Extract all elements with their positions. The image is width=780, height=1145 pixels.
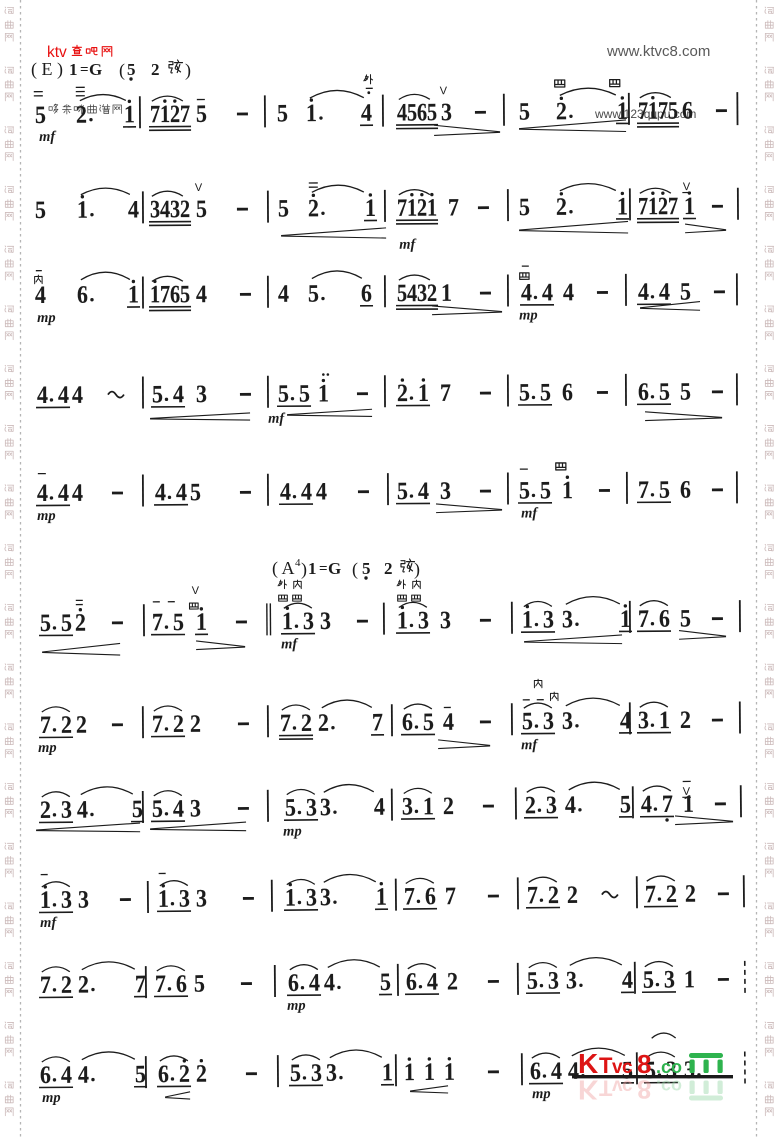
svg-text:3: 3 — [61, 797, 72, 824]
svg-text:4: 4 — [659, 279, 671, 306]
svg-text:5: 5 — [397, 280, 407, 307]
svg-text:6: 6 — [682, 97, 693, 124]
svg-text:1: 1 — [423, 793, 434, 820]
svg-text:2: 2 — [397, 380, 408, 407]
svg-text:5: 5 — [522, 708, 533, 735]
svg-text:7: 7 — [638, 606, 649, 633]
svg-text:7: 7 — [372, 709, 383, 736]
svg-text:3: 3 — [664, 966, 675, 993]
svg-text:7: 7 — [155, 971, 166, 998]
svg-text:1: 1 — [418, 380, 429, 407]
svg-text:2: 2 — [384, 559, 393, 578]
svg-text:4: 4 — [58, 382, 70, 409]
svg-text:7: 7 — [150, 101, 160, 128]
svg-text:2: 2 — [680, 707, 691, 734]
svg-text:www.ktvc8.com: www.ktvc8.com — [606, 43, 710, 60]
svg-text:4: 4 — [35, 282, 47, 309]
svg-text:2: 2 — [40, 797, 51, 824]
svg-text:5: 5 — [540, 379, 551, 406]
svg-text:4: 4 — [418, 478, 430, 505]
svg-text:1: 1 — [404, 1059, 415, 1086]
svg-text:3: 3 — [417, 280, 427, 307]
svg-text:c: c — [622, 1057, 633, 1078]
svg-text:3: 3 — [190, 795, 201, 822]
svg-text:6: 6 — [158, 1061, 169, 1088]
svg-text:4: 4 — [280, 479, 292, 506]
svg-text:mf: mf — [521, 737, 539, 753]
svg-text:4: 4 — [622, 967, 634, 994]
svg-text:3: 3 — [311, 1060, 322, 1087]
svg-text:3: 3 — [638, 707, 649, 734]
svg-text:4: 4 — [78, 1062, 90, 1089]
svg-text:.co: .co — [656, 1077, 682, 1097]
svg-text:7: 7 — [280, 710, 291, 737]
svg-text:5: 5 — [196, 196, 207, 223]
svg-text:5: 5 — [35, 102, 46, 129]
svg-text:1: 1 — [158, 886, 169, 913]
svg-text:4: 4 — [61, 1062, 73, 1089]
svg-text:1: 1 — [562, 477, 573, 504]
svg-text:7: 7 — [662, 791, 673, 818]
svg-text:1: 1 — [40, 887, 51, 914]
svg-text:3: 3 — [320, 608, 331, 635]
svg-text:5: 5 — [135, 1061, 146, 1088]
svg-text:5: 5 — [407, 99, 417, 126]
svg-text:5: 5 — [194, 971, 205, 998]
svg-text:7: 7 — [445, 883, 456, 910]
svg-text:3: 3 — [543, 606, 554, 633]
svg-text:5: 5 — [680, 605, 691, 632]
svg-text:(: ( — [119, 60, 125, 81]
svg-text:5: 5 — [308, 281, 319, 308]
svg-text:4: 4 — [551, 1058, 563, 1085]
svg-text:c: c — [622, 1076, 633, 1097]
svg-text:mf: mf — [399, 237, 417, 253]
svg-text:1: 1 — [617, 193, 628, 220]
svg-text:4: 4 — [278, 281, 290, 308]
svg-text:2: 2 — [180, 196, 190, 223]
svg-text:7: 7 — [135, 971, 146, 998]
svg-text:5: 5 — [427, 99, 437, 126]
svg-text:2: 2 — [525, 792, 536, 819]
svg-text:2: 2 — [447, 968, 458, 995]
svg-text:5: 5 — [278, 381, 289, 408]
svg-text:2: 2 — [685, 881, 696, 908]
svg-text:1: 1 — [659, 707, 670, 734]
svg-text:): ) — [301, 559, 307, 580]
svg-text:4: 4 — [128, 196, 140, 223]
svg-text:5: 5 — [680, 379, 691, 406]
svg-text:V: V — [192, 585, 200, 597]
svg-text:7: 7 — [397, 195, 407, 222]
svg-text:mp: mp — [37, 310, 56, 326]
svg-text:2: 2 — [666, 881, 677, 908]
svg-text:8: 8 — [637, 1075, 651, 1105]
svg-text:5: 5 — [277, 100, 288, 127]
svg-text:5: 5 — [290, 1060, 301, 1087]
svg-text:2: 2 — [151, 60, 160, 79]
svg-text:7: 7 — [638, 98, 648, 125]
svg-text:1: 1 — [684, 193, 695, 220]
svg-text:1: 1 — [397, 607, 408, 634]
svg-text:1: 1 — [444, 1059, 455, 1086]
svg-text:5: 5 — [620, 791, 631, 818]
svg-text:7: 7 — [645, 881, 656, 908]
svg-text:1: 1 — [648, 193, 658, 220]
svg-text:5: 5 — [519, 477, 530, 504]
svg-text:6: 6 — [170, 281, 180, 308]
svg-text:3: 3 — [196, 381, 207, 408]
svg-text:1: 1 — [282, 608, 293, 635]
svg-text:): ) — [414, 559, 420, 580]
svg-text:1: 1 — [382, 1059, 393, 1086]
svg-text:1: 1 — [69, 60, 78, 79]
svg-text:3: 3 — [170, 196, 180, 223]
svg-text:5: 5 — [152, 796, 163, 823]
svg-text:mf: mf — [39, 129, 57, 145]
svg-text:3: 3 — [150, 196, 160, 223]
svg-text:4: 4 — [443, 709, 455, 736]
svg-text:7: 7 — [638, 477, 649, 504]
svg-text:3: 3 — [179, 886, 190, 913]
svg-text:5: 5 — [680, 279, 691, 306]
svg-text:4: 4 — [72, 382, 84, 409]
svg-text:4: 4 — [173, 796, 185, 823]
svg-text:V: V — [195, 182, 203, 194]
svg-text:5: 5 — [190, 479, 201, 506]
svg-text:2: 2 — [658, 193, 668, 220]
svg-text:7: 7 — [152, 609, 163, 636]
svg-text:4: 4 — [427, 969, 439, 996]
svg-text:1: 1 — [648, 98, 658, 125]
svg-text:8: 8 — [637, 1049, 651, 1079]
svg-text:(: ( — [352, 559, 358, 580]
svg-text:3: 3 — [306, 794, 317, 821]
svg-text:1: 1 — [427, 195, 437, 222]
svg-text:6: 6 — [40, 1062, 51, 1089]
svg-text:7: 7 — [527, 882, 538, 909]
svg-text:5: 5 — [519, 99, 530, 126]
svg-text:1: 1 — [128, 281, 139, 308]
svg-text:5: 5 — [527, 968, 538, 995]
svg-text:5: 5 — [127, 60, 136, 79]
svg-text:4: 4 — [309, 970, 321, 997]
svg-text:5: 5 — [180, 281, 190, 308]
svg-text:2: 2 — [556, 98, 567, 125]
svg-text:6: 6 — [176, 971, 187, 998]
svg-text:mp: mp — [37, 508, 56, 524]
svg-text:3: 3 — [196, 885, 207, 912]
svg-text:2: 2 — [173, 711, 184, 738]
svg-text:1: 1 — [124, 101, 135, 128]
svg-text:4: 4 — [361, 100, 373, 127]
svg-text:6: 6 — [659, 606, 670, 633]
svg-text:1: 1 — [522, 607, 533, 634]
svg-text:1: 1 — [160, 101, 170, 128]
svg-text:V: V — [683, 181, 691, 193]
svg-text:2: 2 — [61, 972, 72, 999]
svg-text:1: 1 — [684, 966, 695, 993]
svg-text:4: 4 — [521, 279, 533, 306]
svg-text:3: 3 — [440, 607, 451, 634]
svg-text:7: 7 — [658, 98, 668, 125]
svg-text:mf: mf — [281, 636, 299, 652]
svg-text:4: 4 — [176, 479, 188, 506]
svg-text:3: 3 — [306, 884, 317, 911]
svg-text:2: 2 — [318, 710, 329, 737]
svg-text:4: 4 — [37, 480, 49, 507]
svg-text:5: 5 — [380, 969, 391, 996]
svg-text:V: V — [440, 85, 448, 97]
svg-text:2: 2 — [76, 712, 87, 739]
svg-text:1: 1 — [376, 884, 387, 911]
svg-text:3: 3 — [543, 708, 554, 735]
svg-text:6: 6 — [425, 883, 436, 910]
svg-text:1: 1 — [306, 100, 317, 127]
svg-text:4: 4 — [638, 279, 650, 306]
svg-text:T: T — [599, 1053, 613, 1078]
svg-text:5: 5 — [519, 379, 530, 406]
svg-text:2: 2 — [417, 195, 427, 222]
svg-text:4: 4 — [542, 279, 554, 306]
svg-text:3: 3 — [546, 792, 557, 819]
svg-text:5: 5 — [35, 197, 46, 224]
svg-text:mp: mp — [38, 740, 57, 756]
svg-text:( A: ( A — [272, 558, 295, 579]
svg-text:3: 3 — [440, 478, 451, 505]
svg-text:4: 4 — [374, 794, 386, 821]
svg-text:): ) — [185, 60, 191, 81]
svg-text:4: 4 — [316, 478, 328, 505]
svg-text:3: 3 — [548, 967, 559, 994]
svg-text:mf: mf — [40, 915, 58, 931]
svg-text:7: 7 — [180, 101, 190, 128]
svg-text:( E ): ( E ) — [31, 59, 63, 80]
svg-text:4: 4 — [324, 969, 336, 996]
svg-text:4: 4 — [155, 479, 167, 506]
svg-text:mp: mp — [283, 823, 302, 839]
svg-text:2: 2 — [556, 194, 567, 221]
svg-text:3: 3 — [566, 967, 577, 994]
svg-text:2: 2 — [61, 712, 72, 739]
svg-text:6: 6 — [402, 709, 413, 736]
svg-text:mp: mp — [532, 1086, 551, 1102]
svg-text:6: 6 — [417, 99, 427, 126]
svg-text:3: 3 — [562, 606, 573, 633]
svg-text:3: 3 — [562, 708, 573, 735]
svg-text:5: 5 — [196, 101, 207, 128]
svg-text:2: 2 — [196, 1061, 207, 1088]
svg-text:1: 1 — [77, 197, 88, 224]
svg-text:5: 5 — [278, 195, 289, 222]
svg-text:1: 1 — [196, 609, 207, 636]
svg-text:5: 5 — [519, 194, 530, 221]
svg-text:2: 2 — [179, 1061, 190, 1088]
svg-text:4: 4 — [72, 480, 84, 507]
svg-text:3: 3 — [78, 887, 89, 914]
svg-text:1: 1 — [318, 380, 329, 407]
svg-text:G: G — [89, 60, 102, 79]
svg-text:5: 5 — [643, 967, 654, 994]
svg-text:6: 6 — [680, 477, 691, 504]
svg-text:=: = — [80, 62, 89, 78]
svg-text:2: 2 — [76, 102, 87, 129]
svg-text:2: 2 — [443, 793, 454, 820]
svg-text:T: T — [599, 1076, 613, 1101]
svg-text:mp: mp — [519, 307, 538, 323]
svg-text:7: 7 — [668, 193, 678, 220]
svg-text:7: 7 — [152, 711, 163, 738]
svg-text:5: 5 — [299, 381, 310, 408]
svg-text:1: 1 — [308, 559, 317, 578]
svg-text:K: K — [578, 1048, 598, 1079]
svg-text:3: 3 — [61, 887, 72, 914]
svg-text:1: 1 — [441, 280, 452, 307]
svg-text:2: 2 — [190, 711, 201, 738]
svg-text:3: 3 — [326, 1060, 337, 1087]
svg-text:6: 6 — [361, 280, 372, 307]
svg-text:6: 6 — [77, 282, 88, 309]
svg-text:7: 7 — [40, 972, 51, 999]
svg-text:6: 6 — [530, 1058, 541, 1085]
svg-text:1: 1 — [407, 195, 417, 222]
svg-text:mp: mp — [42, 1090, 61, 1106]
svg-text:2: 2 — [301, 710, 312, 737]
svg-text:4: 4 — [77, 797, 89, 824]
svg-text:7: 7 — [404, 883, 415, 910]
svg-text:2: 2 — [548, 882, 559, 909]
svg-text:1: 1 — [365, 195, 376, 222]
svg-text:2: 2 — [427, 280, 437, 307]
svg-text:4: 4 — [565, 792, 577, 819]
svg-text:5: 5 — [362, 559, 371, 578]
svg-text:5: 5 — [285, 795, 296, 822]
svg-text:7: 7 — [160, 281, 170, 308]
svg-text:1: 1 — [424, 1059, 435, 1086]
svg-text:3: 3 — [320, 794, 331, 821]
svg-text:4: 4 — [563, 279, 575, 306]
svg-text:3: 3 — [303, 608, 314, 635]
svg-text:5: 5 — [132, 796, 143, 823]
svg-text:.co: .co — [656, 1057, 682, 1077]
svg-text:5: 5 — [659, 379, 670, 406]
svg-text:6: 6 — [562, 379, 573, 406]
svg-text:1: 1 — [285, 885, 296, 912]
svg-text:6: 6 — [288, 970, 299, 997]
svg-text:4: 4 — [173, 381, 185, 408]
svg-text:G: G — [328, 559, 341, 578]
svg-text:5: 5 — [173, 609, 184, 636]
svg-text:5: 5 — [423, 709, 434, 736]
svg-text:3: 3 — [320, 884, 331, 911]
svg-text:5: 5 — [61, 610, 72, 637]
svg-text:6: 6 — [638, 379, 649, 406]
svg-text:4: 4 — [196, 281, 208, 308]
svg-text:mp: mp — [287, 998, 306, 1014]
svg-text:2: 2 — [567, 882, 578, 909]
svg-text:2: 2 — [170, 101, 180, 128]
svg-text:4: 4 — [37, 382, 49, 409]
svg-text:3: 3 — [402, 793, 413, 820]
svg-text:2: 2 — [308, 195, 319, 222]
svg-text:mf: mf — [521, 505, 539, 521]
svg-text:7: 7 — [448, 194, 459, 221]
svg-text:5: 5 — [668, 98, 678, 125]
svg-text:2: 2 — [75, 610, 86, 637]
svg-text:7: 7 — [638, 193, 648, 220]
svg-text:7: 7 — [40, 712, 51, 739]
svg-text:mf: mf — [268, 411, 286, 427]
svg-text:3: 3 — [418, 607, 429, 634]
svg-text:2: 2 — [78, 972, 89, 999]
svg-text:7: 7 — [440, 380, 451, 407]
svg-text:4: 4 — [58, 480, 70, 507]
svg-text:K: K — [578, 1075, 598, 1106]
svg-text:5: 5 — [659, 477, 670, 504]
svg-text:5: 5 — [152, 381, 163, 408]
svg-text:1: 1 — [683, 791, 694, 818]
svg-text:4: 4 — [301, 479, 313, 506]
svg-text:6: 6 — [406, 969, 417, 996]
svg-text:4: 4 — [641, 791, 653, 818]
svg-text:5: 5 — [540, 477, 551, 504]
svg-text:=: = — [319, 561, 328, 577]
svg-text:5: 5 — [40, 610, 51, 637]
svg-text:5: 5 — [397, 478, 408, 505]
svg-text:3: 3 — [441, 99, 452, 126]
svg-text:1: 1 — [150, 281, 160, 308]
